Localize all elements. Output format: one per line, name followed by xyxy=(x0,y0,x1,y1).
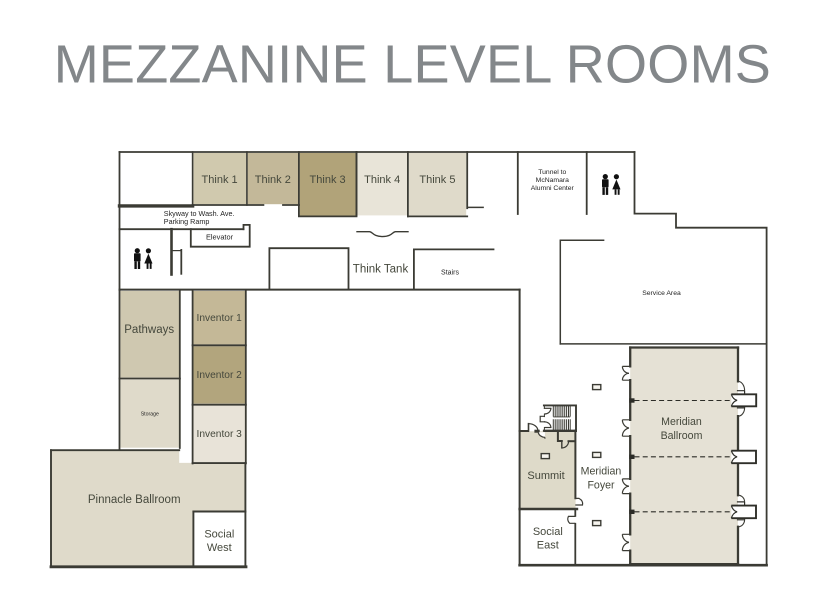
svg-text:Foyer: Foyer xyxy=(587,479,615,491)
svg-text:Pathways: Pathways xyxy=(124,324,174,336)
svg-text:Inventor 2: Inventor 2 xyxy=(197,370,243,381)
svg-text:Summit: Summit xyxy=(527,470,564,482)
svg-text:Inventor 1: Inventor 1 xyxy=(197,313,243,324)
svg-text:Inventor 3: Inventor 3 xyxy=(197,429,243,440)
svg-text:Think 2: Think 2 xyxy=(255,174,291,186)
svg-text:Think 4: Think 4 xyxy=(364,174,400,186)
svg-text:Think 5: Think 5 xyxy=(419,174,455,186)
svg-text:McNamara: McNamara xyxy=(536,177,569,184)
svg-text:Alumni Center: Alumni Center xyxy=(531,185,575,192)
svg-text:Meridian: Meridian xyxy=(661,416,702,428)
svg-text:Social: Social xyxy=(204,528,234,540)
svg-text:Think 3: Think 3 xyxy=(310,174,346,186)
svg-text:Pinnacle Ballroom: Pinnacle Ballroom xyxy=(88,494,181,506)
svg-text:Service Area: Service Area xyxy=(642,290,681,297)
svg-text:East: East xyxy=(537,540,559,552)
svg-text:Think 1: Think 1 xyxy=(202,174,238,186)
svg-text:Ballroom: Ballroom xyxy=(661,430,703,442)
svg-text:Tunnel to: Tunnel to xyxy=(538,169,566,176)
svg-text:West: West xyxy=(207,542,232,554)
svg-text:Parking Ramp: Parking Ramp xyxy=(164,217,210,226)
svg-text:Storage: Storage xyxy=(141,411,159,417)
svg-text:Meridian: Meridian xyxy=(581,465,622,477)
svg-text:Think Tank: Think Tank xyxy=(353,263,409,275)
svg-text:Elevator: Elevator xyxy=(206,232,234,241)
svg-text:Stairs: Stairs xyxy=(441,270,459,277)
svg-text:MEZZANINE LEVEL ROOMS: MEZZANINE LEVEL ROOMS xyxy=(54,35,771,95)
svg-text:Social: Social xyxy=(533,526,563,538)
